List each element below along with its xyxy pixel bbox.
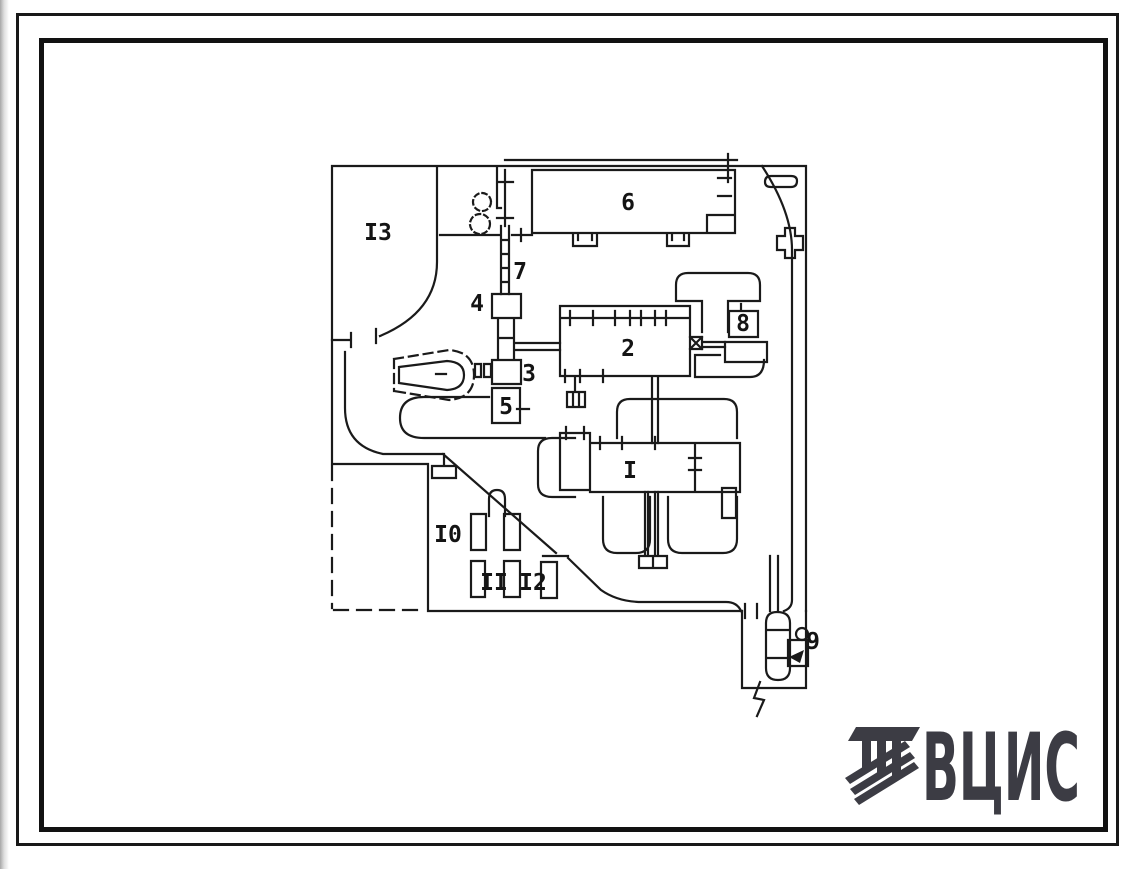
- building-2-outline: [560, 306, 725, 443]
- building-label-7: 7: [513, 259, 527, 285]
- building-label-8: 8: [736, 311, 750, 337]
- drawing-sheet: I3 6 7 4 2 8 3 5 I I0 II I2 9: [0, 0, 1139, 869]
- building-1-conveyors: [639, 492, 667, 568]
- dashed-circle-lower: [470, 214, 490, 234]
- building-label-13: I3: [364, 220, 392, 246]
- building-label-1: I: [623, 458, 637, 484]
- building-9-tank: [766, 612, 808, 680]
- building-label-10: I0: [434, 522, 462, 548]
- building-1-roads: [538, 399, 737, 553]
- logo: ВЦИС: [845, 714, 1080, 823]
- south-gate-roads: [742, 556, 806, 688]
- gallery-3-to-2: [515, 343, 560, 350]
- plan-labels: I3 6 7 4 2 8 3 5 I I0 II I2 9: [364, 190, 820, 655]
- site-plan: I3 6 7 4 2 8 3 5 I I0 II I2 9: [0, 0, 1139, 869]
- right-road: [762, 166, 792, 611]
- building-label-4: 4: [470, 291, 484, 317]
- building-label-6: 6: [621, 190, 635, 216]
- gallery-7: [497, 167, 513, 294]
- stockpile-cone: [399, 361, 464, 390]
- dashed-circle-upper: [473, 193, 491, 211]
- stockpile-cone-dashed: [394, 350, 474, 400]
- building-label-2: 2: [621, 336, 635, 362]
- road-around-building-5: [400, 397, 545, 438]
- building-label-12: I2: [519, 570, 547, 596]
- site-boundary-dashed: [332, 466, 426, 610]
- plan-linework: [332, 154, 808, 716]
- building-label-11: II: [480, 570, 508, 596]
- building-9-arrow: [789, 650, 804, 663]
- building-label-5: 5: [499, 394, 513, 420]
- logo-emblem-icon: [845, 727, 920, 805]
- building-label-3: 3: [522, 361, 536, 387]
- building-label-9: 9: [806, 629, 820, 655]
- building-8-outline: [695, 304, 767, 377]
- logo-text: ВЦИС: [922, 714, 1080, 823]
